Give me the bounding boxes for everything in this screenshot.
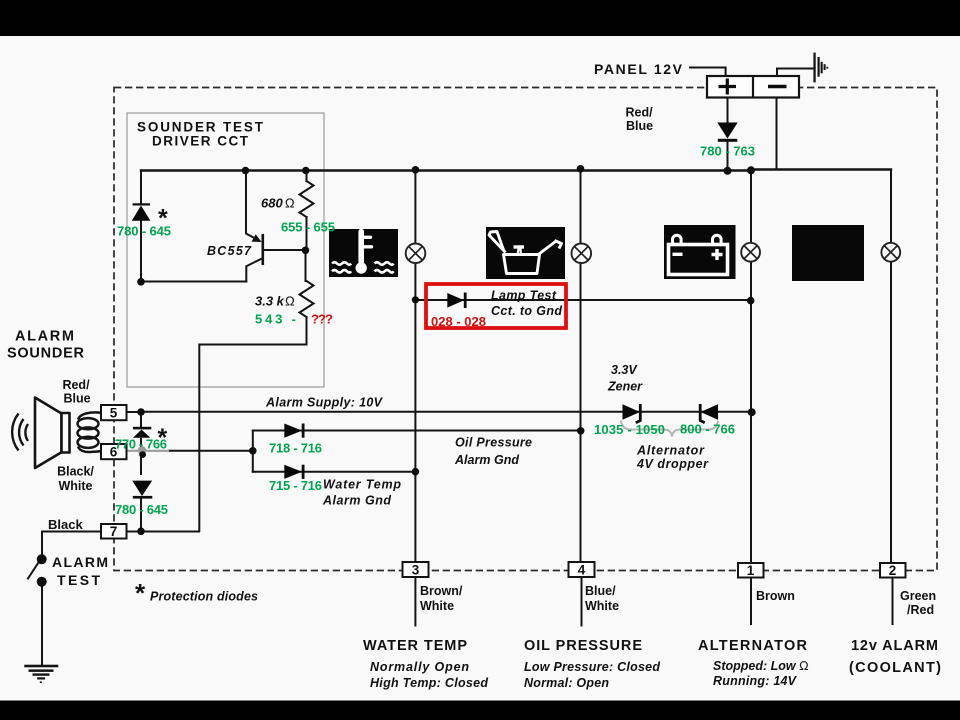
- svg-text:Black/: Black/: [57, 465, 94, 479]
- svg-text:Green: Green: [900, 589, 936, 603]
- svg-text:ALARM: ALARM: [52, 554, 108, 570]
- svg-text:Alternator: Alternator: [636, 444, 705, 458]
- svg-text:2: 2: [889, 563, 897, 578]
- svg-text:Low Pressure: Closed: Low Pressure: Closed: [524, 660, 660, 674]
- svg-text:680Ω: 680Ω: [261, 196, 295, 211]
- svg-text:SOUNDER: SOUNDER: [7, 346, 85, 362]
- svg-text:Normally Open: Normally Open: [370, 660, 469, 674]
- svg-text:1: 1: [747, 563, 755, 578]
- svg-text:4: 4: [578, 563, 586, 578]
- svg-text:Alarm Gnd: Alarm Gnd: [322, 494, 391, 508]
- svg-text:Stopped: Low Ω: Stopped: Low Ω: [713, 659, 809, 673]
- svg-text:3.3 kΩ: 3.3 kΩ: [255, 294, 295, 309]
- svg-text:OIL PRESSURE: OIL PRESSURE: [524, 638, 642, 654]
- svg-text:ALARM: ALARM: [15, 329, 74, 345]
- svg-text:Normal: Open: Normal: Open: [524, 676, 609, 690]
- svg-text:7: 7: [110, 524, 118, 539]
- svg-text:Zener: Zener: [607, 380, 643, 394]
- svg-text:ALTERNATOR: ALTERNATOR: [698, 638, 808, 654]
- svg-text:White: White: [58, 479, 92, 493]
- svg-text:Brown/: Brown/: [420, 584, 463, 598]
- svg-text:PANEL 12V: PANEL 12V: [594, 61, 683, 77]
- svg-text:1035 - 1050: 1035 - 1050: [594, 422, 665, 437]
- svg-text:800 - 766: 800 - 766: [680, 422, 735, 437]
- svg-text:4V dropper: 4V dropper: [636, 457, 709, 471]
- svg-text:Lamp Test: Lamp Test: [491, 289, 557, 303]
- svg-text:/Red: /Red: [907, 603, 934, 617]
- svg-text:Cct. to Gnd: Cct. to Gnd: [491, 304, 562, 318]
- svg-text:Blue/: Blue/: [585, 584, 616, 598]
- svg-text:(COOLANT): (COOLANT): [849, 660, 941, 676]
- svg-text:3.3V: 3.3V: [611, 363, 638, 377]
- svg-text:Oil Pressure: Oil Pressure: [455, 436, 532, 450]
- svg-text:Alarm Gnd: Alarm Gnd: [454, 453, 519, 467]
- svg-text:SOUNDER TEST: SOUNDER TEST: [137, 120, 264, 135]
- svg-text:High Temp: Closed: High Temp: Closed: [370, 676, 488, 690]
- svg-text:780 - 645: 780 - 645: [115, 502, 168, 517]
- svg-text:*: *: [158, 205, 168, 233]
- svg-text:Water Temp: Water Temp: [323, 478, 401, 492]
- svg-text:White: White: [420, 599, 454, 613]
- svg-text:028 - 028: 028 - 028: [431, 314, 486, 329]
- svg-text:Brown: Brown: [756, 589, 795, 603]
- svg-text:Running: 14V: Running: 14V: [713, 674, 798, 688]
- svg-text:718 - 716: 718 - 716: [269, 441, 322, 456]
- svg-text:WATER TEMP: WATER TEMP: [363, 638, 467, 654]
- svg-text:6: 6: [110, 445, 118, 460]
- svg-text:Black: Black: [48, 517, 83, 532]
- svg-text:DRIVER CCT: DRIVER CCT: [152, 134, 249, 149]
- svg-text:655 - 655: 655 - 655: [281, 220, 335, 235]
- svg-text:White: White: [585, 599, 619, 613]
- svg-text:TEST: TEST: [57, 572, 100, 588]
- svg-text:Alarm Supply: 10V: Alarm Supply: 10V: [265, 396, 384, 410]
- svg-text:Red/: Red/: [62, 378, 90, 392]
- svg-text:780 - 763: 780 - 763: [700, 144, 755, 159]
- svg-text:Blue: Blue: [626, 119, 653, 133]
- svg-text:5: 5: [110, 406, 118, 421]
- svg-text:*: *: [158, 424, 168, 452]
- svg-text:715 - 716: 715 - 716: [269, 478, 322, 493]
- svg-text:12v ALARM: 12v ALARM: [851, 638, 938, 654]
- svg-text:3: 3: [412, 563, 420, 578]
- svg-text:*: *: [135, 578, 146, 608]
- svg-text:???: ???: [311, 312, 333, 327]
- svg-text:Red/: Red/: [626, 106, 654, 120]
- svg-text:Blue: Blue: [63, 392, 90, 406]
- svg-text:Protection diodes: Protection diodes: [150, 590, 258, 604]
- svg-text:BC557: BC557: [207, 244, 252, 258]
